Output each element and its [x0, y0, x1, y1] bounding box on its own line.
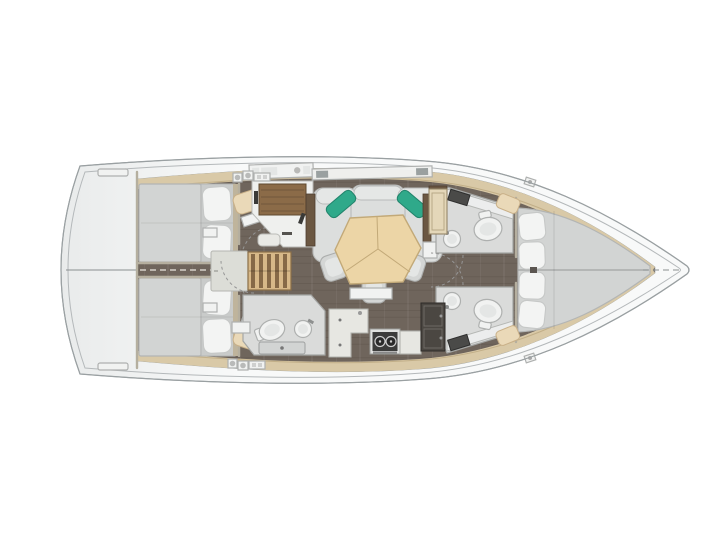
chart-table-top [259, 184, 306, 215]
deck-hatch [98, 169, 128, 176]
ledge-vent [416, 168, 428, 175]
wardrobe-knob [440, 337, 443, 340]
pillow [518, 300, 547, 330]
washbasin-bowl [298, 324, 308, 334]
end-cabinet [306, 194, 315, 246]
bedside-step [203, 303, 217, 312]
burner-cap [379, 340, 381, 342]
shelf-box [303, 166, 310, 174]
hinge [254, 191, 258, 204]
washbasin-bowl [447, 234, 457, 244]
faucet [358, 311, 362, 315]
shelf [232, 322, 250, 333]
pillow [518, 212, 547, 242]
bedside-step [203, 228, 217, 237]
wardrobe-knob [440, 315, 443, 318]
ledge-vent [316, 171, 328, 178]
deck-hatch [98, 363, 128, 370]
pillow [202, 318, 232, 353]
shower-drain [280, 346, 284, 350]
berth-fitting [530, 267, 537, 273]
pillow [519, 242, 546, 270]
back-cushion [354, 186, 402, 200]
galley-counter-aft [400, 331, 421, 354]
locker-knob [339, 344, 342, 347]
deck-fitting-cluster [233, 171, 270, 182]
side-locker [423, 242, 437, 258]
floorplan-canvas [0, 0, 720, 539]
washbasin-bowl [447, 296, 457, 306]
yacht-floorplan [0, 0, 720, 539]
faucet [445, 305, 449, 309]
sideboard [350, 288, 392, 299]
burner-cap [390, 340, 392, 342]
pillow [202, 186, 232, 222]
pillow [519, 272, 546, 300]
deck-fitting-cluster [228, 359, 265, 370]
wardrobe [421, 303, 445, 351]
locker-knob [339, 319, 342, 322]
side-ledge [312, 166, 432, 180]
nav-seat [258, 234, 280, 246]
handle [282, 232, 292, 235]
